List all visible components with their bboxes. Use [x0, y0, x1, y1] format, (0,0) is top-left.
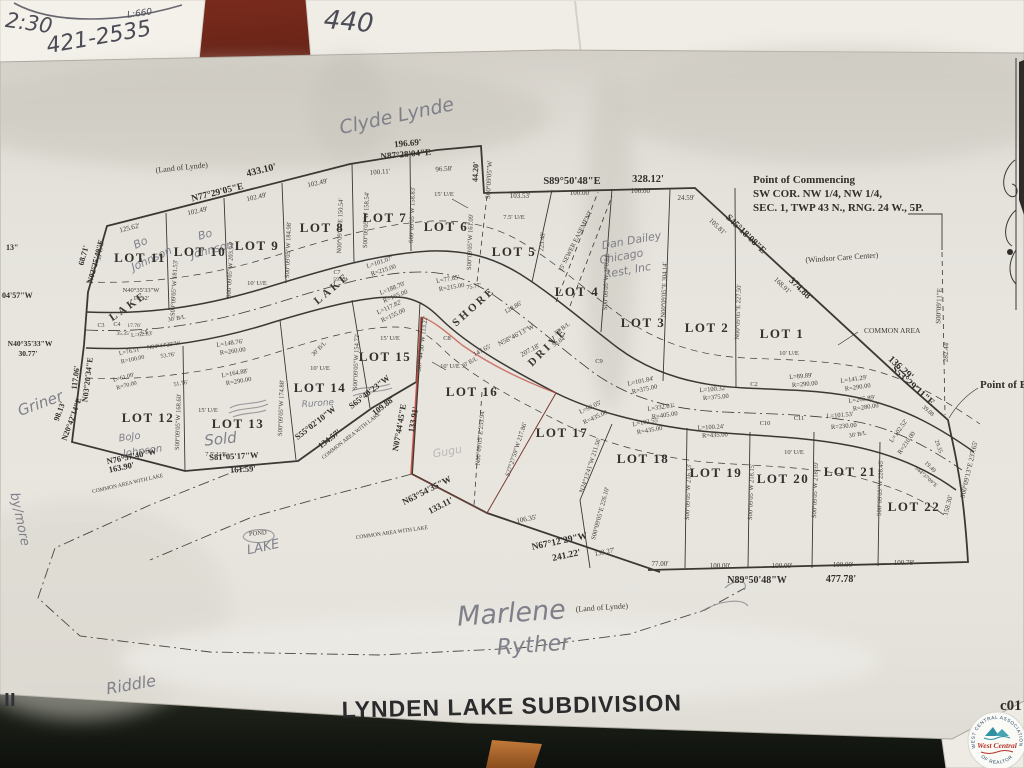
map-label: 10' U/E [310, 365, 330, 372]
lot-6-label: LOT 6 [424, 219, 468, 234]
map-label: 15' U/E [198, 407, 218, 414]
map-label: C3 [97, 323, 104, 329]
map-label: N40°35'33"W [8, 339, 53, 348]
map-label: 100.00' [631, 187, 652, 195]
point-of-commencing-line1: Point of Commencing [753, 174, 856, 186]
lot-10-label: LOT 10 [174, 244, 226, 259]
map-label: 10' U/E [784, 449, 804, 456]
map-label: C2 [750, 381, 758, 388]
point-of-commencing-line3: SEC. 1, TWP 43 N., RNG. 24 W., 5P. [753, 202, 924, 214]
map-label: 100.00' [772, 562, 793, 570]
handwritten-sold-note: Sold [203, 428, 238, 449]
map-label: 13" [6, 243, 18, 252]
map-label: COMMON AREA [864, 326, 921, 335]
map-label: C11 [794, 415, 805, 422]
lot-18-label: LOT 18 [617, 451, 669, 466]
map-label: 7.5' U/E [503, 214, 524, 221]
map-label: 10' U/E [779, 350, 799, 357]
map-label: C5 [140, 330, 147, 336]
map-label: 161.59' [230, 463, 256, 474]
lot-21-label: LOT 21 [824, 464, 876, 479]
map-label: 59.52' [333, 277, 346, 283]
plat-map-photo: Point of Commencing SW COR. NW 1/4, NW 1… [0, 0, 1024, 768]
west-central-realtors-logo: West Central WEST CENTRAL ASSOCIATION OF… [968, 712, 1024, 768]
map-label: 103.53' [510, 192, 531, 200]
lot-8-label: LOT 8 [300, 220, 344, 235]
map-label: 328.12' [632, 174, 664, 185]
map-label: 10' U/E [440, 363, 460, 370]
map-label: 04'57"W [2, 291, 33, 300]
corner-note: c01 [1000, 698, 1022, 714]
map-label: 100.11' [369, 167, 390, 176]
map-label: 100.78' [894, 559, 915, 567]
logo-name: West Central [977, 741, 1018, 750]
point-of-commencing-line2: SW COR. NW 1/4, NW 1/4, [753, 188, 882, 200]
lot-15-label: LOT 15 [359, 349, 411, 364]
map-label: C7 [333, 270, 340, 276]
map-label: L=100.24' [697, 423, 724, 431]
map-label: 96.58' [435, 165, 452, 174]
map-label: S00°09'11"E [934, 288, 943, 324]
lot-19-label: LOT 19 [690, 465, 742, 480]
lot-1-label: LOT 1 [760, 326, 804, 341]
map-label: C8 [443, 335, 451, 342]
map-label: 44.20' [470, 162, 480, 183]
lot-14-label: LOT 14 [294, 380, 346, 395]
lot-5-label: LOT 5 [492, 244, 536, 259]
lot-9-label: LOT 9 [235, 238, 279, 253]
lot-12-label: LOT 12 [122, 410, 174, 425]
lot-16-label: LOT 16 [446, 384, 498, 399]
map-label: C4 [113, 322, 120, 328]
map-label: 282.44' [942, 342, 951, 363]
map-label: 24.59' [677, 194, 694, 202]
handwritten-number-note: 440 [323, 5, 375, 39]
map-label: 15' U/E [434, 191, 454, 198]
map-label: C9 [595, 358, 603, 365]
partial-edge-text: ll [4, 691, 16, 711]
map-label: C10 [760, 420, 771, 427]
lot-13-label: LOT 13 [212, 416, 264, 431]
map-label: 35.35' [116, 331, 129, 337]
map-label: R=435.00 [702, 431, 728, 439]
map-label: 77.00' [651, 560, 668, 568]
point-of-beginning-label: Point of Be [980, 379, 1024, 391]
map-label: 7.5' U/E [205, 451, 226, 458]
map-label: 100.00' [570, 189, 591, 197]
map-label: 10' U/E [247, 280, 267, 287]
map-label: 477.78' [826, 574, 857, 585]
lot-17-label: LOT 17 [536, 425, 588, 440]
lot-22-label: LOT 22 [888, 499, 940, 514]
map-label: N89°50'48"W [727, 575, 787, 586]
plat-drawing: Point of Commencing SW COR. NW 1/4, NW 1… [0, 0, 1024, 768]
lot-20-label: LOT 20 [757, 471, 809, 486]
map-label: 30.77' [19, 349, 38, 358]
lot-11-label: LOT 11 [114, 250, 166, 265]
logo-circle [968, 712, 1024, 768]
lot-2-label: LOT 2 [685, 320, 729, 335]
map-label: 17.76' [127, 323, 140, 329]
map-label: 100.00' [833, 561, 854, 569]
lot-7-label: LOT 7 [363, 210, 407, 225]
lot-3-label: LOT 3 [621, 315, 665, 330]
handwritten-neighbor-note: Ryther [496, 630, 573, 660]
map-label: 100.00' [710, 562, 731, 570]
map-label: 15' U/E [380, 335, 400, 342]
wood-sliver-bottom [486, 740, 542, 768]
lot-4-label: LOT 4 [555, 284, 599, 299]
map-label: S89°50'48"E [543, 176, 600, 187]
